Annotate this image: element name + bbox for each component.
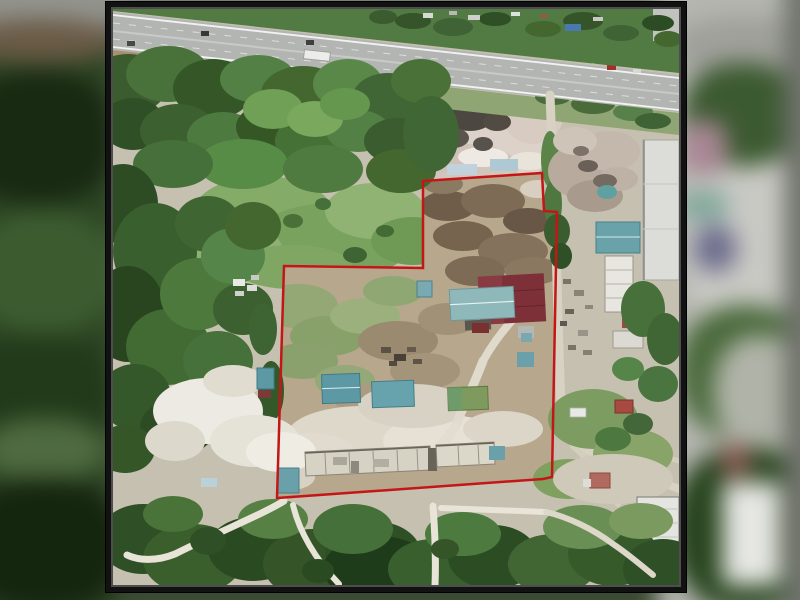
blue-tarp: [447, 164, 477, 175]
white-car: [633, 69, 641, 73]
dark-car: [201, 31, 209, 36]
teal-roof-shed: [257, 368, 274, 389]
blue-tarp: [490, 159, 518, 171]
slide-stage: [0, 0, 800, 600]
blue-truck: [565, 24, 581, 31]
photo-frame: [106, 2, 686, 592]
large-white-building: [643, 140, 679, 280]
teal-shed-a: [322, 373, 361, 403]
aerial-photo-canvas: [113, 9, 679, 585]
blue-tarp: [201, 478, 217, 487]
red-roof-house: [590, 473, 610, 488]
red-roof-house: [615, 400, 633, 413]
teal-shed-b: [372, 380, 415, 407]
dark-car: [306, 40, 314, 45]
dark-car: [127, 41, 135, 46]
white-van: [570, 408, 586, 417]
green-shed: [448, 386, 489, 410]
teal-roof-building: [449, 286, 515, 320]
aerial-photo: [113, 9, 679, 585]
